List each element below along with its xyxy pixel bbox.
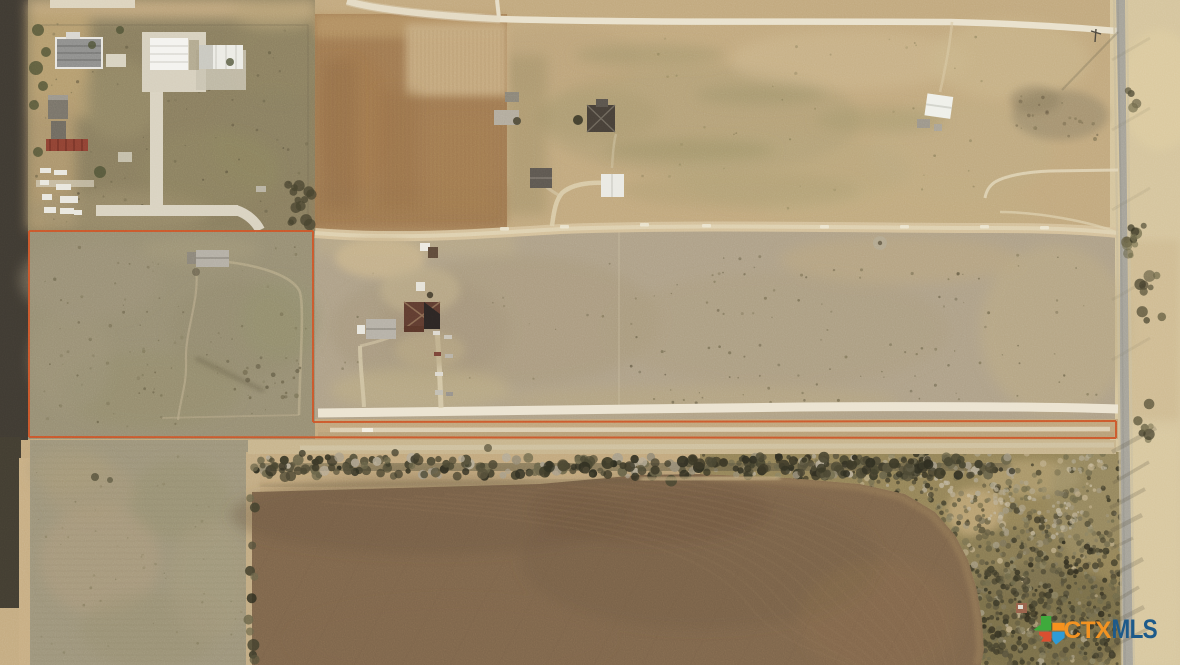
svg-text:MLS: MLS bbox=[1112, 615, 1158, 644]
svg-text:CTX: CTX bbox=[1064, 617, 1113, 644]
